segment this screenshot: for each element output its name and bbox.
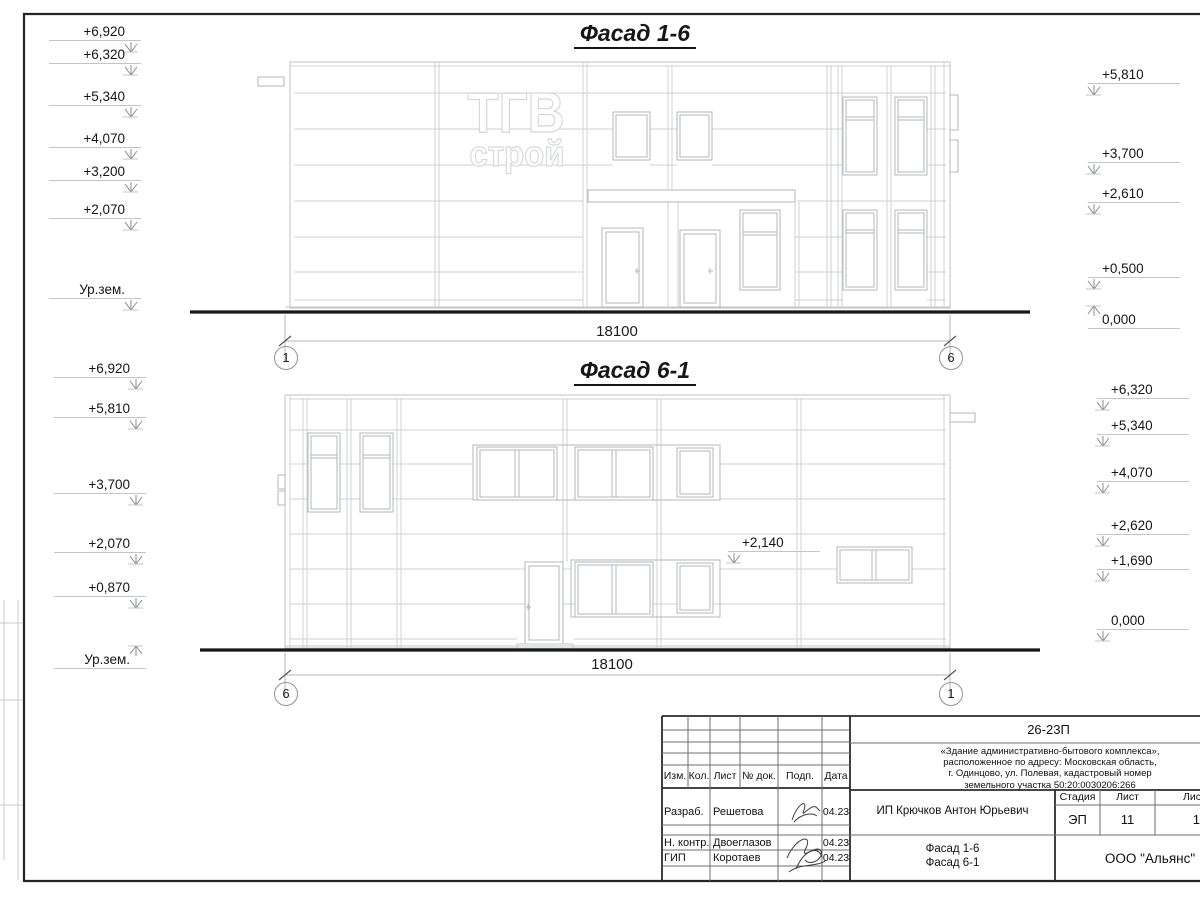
- axis-marker-6b: 6: [274, 682, 298, 706]
- tb-role-nkontr: Н. контр.: [664, 837, 709, 849]
- tb-project-description: «Здание административно-бытового комплек…: [860, 746, 1200, 791]
- tb-header-list: Лист: [710, 770, 740, 782]
- level-arrow-down-icon: [121, 219, 141, 233]
- level-arrow-down-icon: [1084, 203, 1104, 217]
- elevation-mark-label: +0,870: [56, 580, 130, 595]
- tb-header-data: Дата: [822, 770, 850, 782]
- tb-desc-line2: расположенное по адресу: Московская обла…: [860, 757, 1200, 768]
- level-arrow-down-icon: [1093, 535, 1113, 549]
- tb-drawing-title-1: Фасад 1-6: [850, 843, 1055, 855]
- tb-header-podp: Подп.: [778, 770, 822, 782]
- tb-name-dvoeglazov: Двоеглазов: [713, 837, 771, 849]
- elevation-mark-label: +1,690: [1111, 553, 1191, 568]
- level-arrow-down-icon: [121, 106, 141, 120]
- tb-desc-line1: «Здание административно-бытового комплек…: [860, 746, 1200, 757]
- facade-1-6-dimension-text: 18100: [557, 323, 677, 340]
- facade-6-1-title: Фасад 6-1: [550, 357, 720, 384]
- level-arrow-down-icon: [1093, 435, 1113, 449]
- tb-date-1: 04.23: [822, 806, 850, 818]
- elevation-mark-label: +3,700: [1102, 146, 1182, 161]
- elevation-mark-label: +3,200: [51, 164, 125, 179]
- axis-marker-1b: 1: [939, 682, 963, 706]
- level-arrow-down-icon: [724, 552, 744, 566]
- tb-header-stage: Стадия: [1055, 791, 1100, 803]
- tb-date-2: 04.23: [822, 837, 850, 849]
- level-arrow-down-icon: [1084, 278, 1104, 292]
- elevation-mark-label: +4,070: [1111, 465, 1191, 480]
- elevation-mark-label: +2,070: [56, 536, 130, 551]
- elevation-mark-label: +2,140: [742, 535, 822, 550]
- elevation-mark-label: 0,000: [1102, 312, 1182, 327]
- tb-desc-line3: г. Одинцово, ул. Полевая, кадастровый но…: [860, 768, 1200, 779]
- facade-1-6-title: Фасад 1-6: [550, 20, 720, 47]
- tb-desc-line4: земельного участка 50:20:0030206:266: [860, 780, 1200, 791]
- tb-company: ООО "Альянс": [1055, 851, 1200, 866]
- tb-header-sheet: Лист: [1100, 791, 1155, 803]
- tb-sheet-value: 11: [1100, 812, 1155, 827]
- tb-stage-value: ЭП: [1055, 812, 1100, 827]
- tb-client: ИП Крючков Антон Юрьевич: [850, 805, 1055, 817]
- elevation-mark-label: +5,340: [51, 89, 125, 104]
- elevation-mark-label: 0,000: [1111, 613, 1191, 628]
- elevation-mark-label: +5,340: [1111, 418, 1191, 433]
- elevation-mark-label: +0,500: [1102, 261, 1182, 276]
- level-arrow-down-icon: [121, 181, 141, 195]
- tb-date-3: 04.23: [822, 852, 850, 864]
- level-arrow-down-icon: [126, 378, 146, 392]
- elevation-mark-label: +6,320: [1111, 382, 1191, 397]
- tb-doc-number: 26-23П: [850, 722, 1200, 737]
- facade-6-1-dimension-text: 18100: [552, 656, 672, 673]
- elevation-mark-label: +6,320: [51, 47, 125, 62]
- level-arrow-down-icon: [121, 148, 141, 162]
- level-arrow-down-icon: [1093, 570, 1113, 584]
- level-arrow-up-icon: [1084, 303, 1104, 317]
- elevation-mark-label: +2,610: [1102, 186, 1182, 201]
- level-arrow-down-icon: [121, 299, 141, 313]
- level-arrow-down-icon: [1084, 84, 1104, 98]
- tb-name-korotaev: Коротаев: [713, 852, 761, 864]
- tb-header-kol: Кол.: [688, 770, 710, 782]
- level-arrow-down-icon: [1093, 630, 1113, 644]
- elevation-mark-label: Ур.зем.: [56, 652, 130, 667]
- elevation-mark-label: +2,620: [1111, 518, 1191, 533]
- tb-header-sheets: Листов: [1155, 791, 1200, 803]
- tb-role-razrab: Разраб.: [664, 806, 704, 818]
- level-arrow-down-icon: [126, 494, 146, 508]
- tb-drawing-title-2: Фасад 6-1: [850, 857, 1055, 869]
- level-arrow-down-icon: [1093, 482, 1113, 496]
- axis-marker-6: 6: [939, 346, 963, 370]
- elevation-mark-label: +4,070: [51, 131, 125, 146]
- level-arrow-up-icon: [126, 643, 146, 657]
- elevation-mark-shelf: [54, 668, 146, 669]
- tb-name-reshetova: Решетова: [713, 806, 763, 818]
- tb-header-izm: Изм.: [662, 770, 688, 782]
- tb-header-doc: № док.: [740, 770, 778, 782]
- elevation-mark-label: +5,810: [56, 401, 130, 416]
- level-arrow-down-icon: [121, 64, 141, 78]
- elevation-mark-label: +6,920: [56, 361, 130, 376]
- elevation-mark-label: +5,810: [1102, 67, 1182, 82]
- level-arrow-down-icon: [126, 418, 146, 432]
- elevation-mark-label: +6,920: [51, 24, 125, 39]
- tb-role-gip: ГИП: [664, 852, 686, 864]
- level-arrow-down-icon: [126, 553, 146, 567]
- elevation-mark-label: +3,700: [56, 477, 130, 492]
- elevation-mark-label: +2,070: [51, 202, 125, 217]
- elevation-mark-shelf: [1088, 328, 1180, 329]
- tb-sheets-value: 17: [1155, 812, 1200, 827]
- level-arrow-down-icon: [1093, 399, 1113, 413]
- level-arrow-down-icon: [1084, 163, 1104, 177]
- level-arrow-down-icon: [126, 597, 146, 611]
- axis-marker-1: 1: [274, 346, 298, 370]
- elevation-mark-label: Ур.зем.: [51, 282, 125, 297]
- drawing-sheet: ТГВ строй: [0, 0, 1200, 900]
